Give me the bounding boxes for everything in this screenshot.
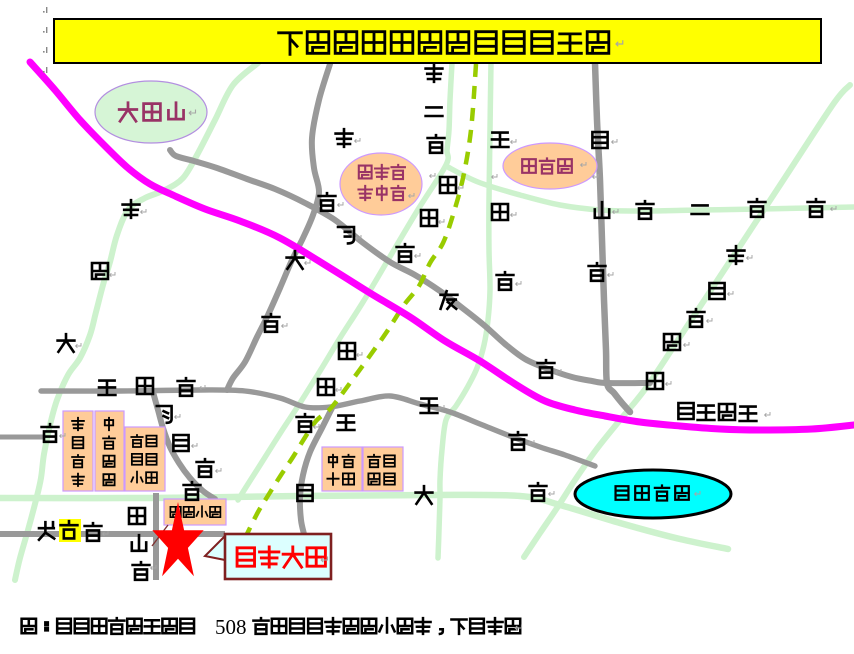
svg-text:508: 508 <box>215 615 247 639</box>
